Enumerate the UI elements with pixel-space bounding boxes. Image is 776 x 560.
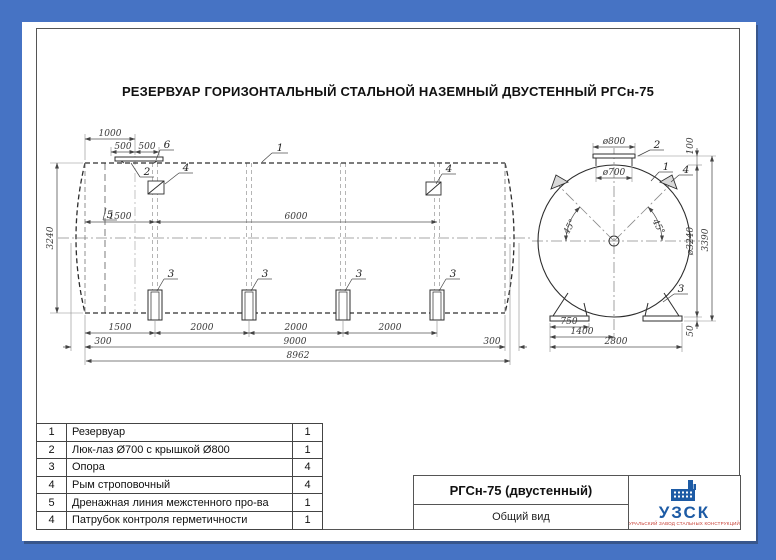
part-pos: 4 [37, 511, 67, 529]
title-block-left: РГСн-75 (двустенный) Общий вид [414, 476, 629, 529]
view-name: Общий вид [414, 505, 628, 529]
end-callout-1: 1 [663, 161, 670, 173]
logo-tagline: УРАЛЬСКИЙ ЗАВОД СТАЛЬНЫХ КОНСТРУКЦИЙ [629, 521, 740, 526]
title-block: РГСн-75 (двустенный) Общий вид УЗСК УРАЛ… [413, 475, 741, 530]
lifting-lug-symbols [148, 181, 441, 195]
dim-2800: 2800 [604, 337, 628, 347]
part-name: Рым строповочный [67, 476, 293, 494]
part-name: Патрубок контроля герметичности [67, 511, 293, 529]
dim-2000-c: 2000 [378, 323, 402, 333]
dim-500-right: 500 [138, 142, 155, 152]
dim-300-left: 300 [94, 337, 111, 347]
dim-50: 50 [686, 325, 696, 337]
part-name: Люк-лаз Ø700 с крышкой Ø800 [67, 441, 293, 459]
part-pos: 5 [37, 494, 67, 512]
dim-300-right: 300 [483, 337, 500, 347]
callout-3-b: 3 [262, 268, 269, 280]
part-qty: 1 [293, 424, 323, 442]
callout-3-c: 3 [356, 268, 363, 280]
angle-45-right: 45° [649, 217, 666, 237]
table-row: 3 Опора 4 [37, 459, 323, 477]
part-pos: 3 [37, 459, 67, 477]
part-qty: 1 [293, 494, 323, 512]
part-name: Резервуар [67, 424, 293, 442]
supports [148, 290, 444, 320]
callout-3-d: 3 [450, 268, 457, 280]
dim-2000-a: 2000 [190, 323, 214, 333]
part-pos: 1 [37, 424, 67, 442]
dim-1400: 1400 [571, 327, 594, 337]
manhole-hatch [115, 157, 163, 163]
part-qty: 1 [293, 511, 323, 529]
model-designation: РГСн-75 (двустенный) [414, 476, 628, 505]
part-name: Дренажная линия межстенного про-ва [67, 494, 293, 512]
end-callout-4: 4 [682, 164, 690, 176]
dim-700: ø700 [602, 168, 626, 178]
callout-2: 2 [143, 166, 151, 178]
part-pos: 4 [37, 476, 67, 494]
dim-100: 100 [686, 137, 696, 154]
dim-3240-end: ø3240 [686, 227, 696, 257]
side-view: 1000 500 500 1500 6000 3240 1500 2000 20… [46, 129, 532, 365]
dim-750: 750 [560, 317, 577, 327]
dim-3240-side: 3240 [46, 226, 56, 249]
parts-table: 1 Резервуар 1 2 Люк-лаз Ø700 с крышкой Ø… [36, 423, 323, 530]
dim-6000: 6000 [285, 212, 308, 222]
table-row: 2 Люк-лаз Ø700 с крышкой Ø800 1 [37, 441, 323, 459]
dim-8962: 8962 [287, 351, 310, 361]
part-name: Опора [67, 459, 293, 477]
table-row: 1 Резервуар 1 [37, 424, 323, 442]
callout-4-right: 4 [445, 163, 453, 175]
callout-leaders [103, 150, 460, 291]
end-callout-3: 3 [678, 283, 685, 295]
drawing-title: РЕЗЕРВУАР ГОРИЗОНТАЛЬНЫЙ СТАЛЬНОЙ НАЗЕМН… [36, 84, 740, 99]
dim-500-left: 500 [114, 142, 131, 152]
company-logo: УЗСК УРАЛЬСКИЙ ЗАВОД СТАЛЬНЫХ КОНСТРУКЦИ… [629, 476, 740, 529]
callout-4-left: 4 [182, 162, 190, 174]
dim-1000: 1000 [99, 129, 122, 139]
part-qty: 4 [293, 459, 323, 477]
part-qty: 4 [293, 476, 323, 494]
logo-abbr: УЗСК [659, 506, 710, 520]
end-callout-2: 2 [653, 139, 661, 151]
dim-3390: 3390 [701, 228, 711, 251]
table-row: 5 Дренажная линия межстенного про-ва 1 [37, 494, 323, 512]
end-view: 45° 45° [532, 137, 716, 352]
callout-1: 1 [277, 142, 284, 154]
dim-2000-b: 2000 [284, 323, 308, 333]
callout-5: 5 [107, 209, 114, 221]
table-row: 4 Рым строповочный 4 [37, 476, 323, 494]
part-pos: 2 [37, 441, 67, 459]
dim-9000: 9000 [284, 337, 307, 347]
callout-6: 6 [164, 139, 171, 151]
part-qty: 1 [293, 441, 323, 459]
end-manhole-hatch [593, 154, 635, 166]
table-row: 4 Патрубок контроля герметичности 1 [37, 511, 323, 529]
screenshot-root: { "title": "РЕЗЕРВУАР ГОРИЗОНТАЛЬНЫЙ СТА… [0, 0, 776, 560]
angle-45-left: 45° [562, 218, 579, 238]
dim-1500-bottom: 1500 [109, 323, 132, 333]
dim-800: ø800 [602, 137, 626, 147]
callout-3-a: 3 [168, 268, 175, 280]
